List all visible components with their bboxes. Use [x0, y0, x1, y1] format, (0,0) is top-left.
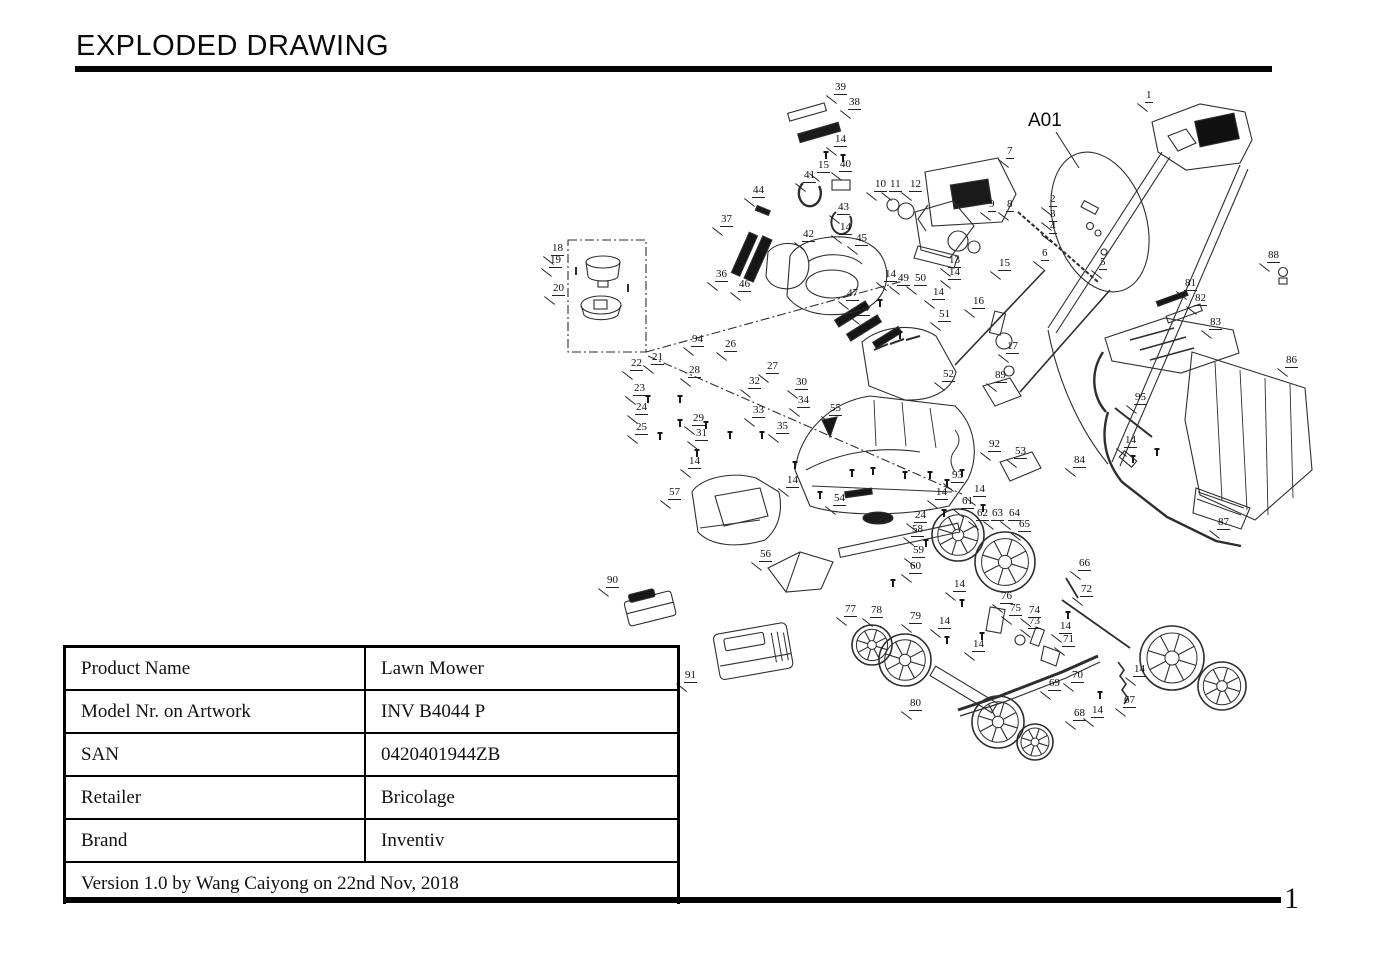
blade [838, 523, 959, 557]
rear-flap [1000, 452, 1041, 481]
table-row: Brand Inventiv [65, 819, 679, 862]
baffle-54 [845, 488, 873, 498]
table-row: Model Nr. on Artwork INV B4044 P [65, 690, 679, 733]
row-label: SAN [65, 733, 366, 776]
row-label: Retailer [65, 776, 366, 819]
a01-balloon [1034, 132, 1166, 305]
row-value: INV B4044 P [365, 690, 679, 733]
row-value: Lawn Mower [365, 647, 679, 691]
deck-shroud [862, 327, 956, 400]
table-row: Product Name Lawn Mower [65, 647, 679, 691]
fan [863, 512, 893, 524]
intake-scoop [766, 243, 809, 288]
deck-body [795, 396, 974, 514]
grass-bag [1185, 352, 1312, 529]
row-label: Product Name [65, 647, 366, 691]
battery-pack [622, 585, 676, 627]
handle-grips [755, 103, 851, 234]
detail-box [568, 240, 646, 352]
grass-bag-lid [1094, 318, 1239, 412]
row-label: Model Nr. on Artwork [65, 690, 366, 733]
document-page: EXPLODED DRAWING [0, 0, 1376, 954]
motor-bracket [887, 199, 1098, 282]
handle-assembly [955, 104, 1252, 467]
battery-cover [918, 158, 1016, 231]
charger [713, 622, 794, 680]
row-label: Brand [65, 819, 366, 862]
assembly-callout-a01: A01 [1028, 110, 1062, 132]
handle-bracket [983, 366, 1021, 406]
product-info-table: Product Name Lawn Mower Model Nr. on Art… [63, 645, 680, 904]
row-value: Inventiv [365, 819, 679, 862]
row-value: 0420401944ZB [365, 733, 679, 776]
wheels [852, 509, 1246, 760]
table-row: Retailer Bricolage [65, 776, 679, 819]
bottom-rule [63, 897, 1281, 903]
table-row: SAN 0420401944ZB [65, 733, 679, 776]
row-value: Bricolage [365, 776, 679, 819]
page-number: 1 [1284, 882, 1299, 916]
mulch-bag [768, 552, 833, 592]
front-cover [692, 475, 780, 545]
